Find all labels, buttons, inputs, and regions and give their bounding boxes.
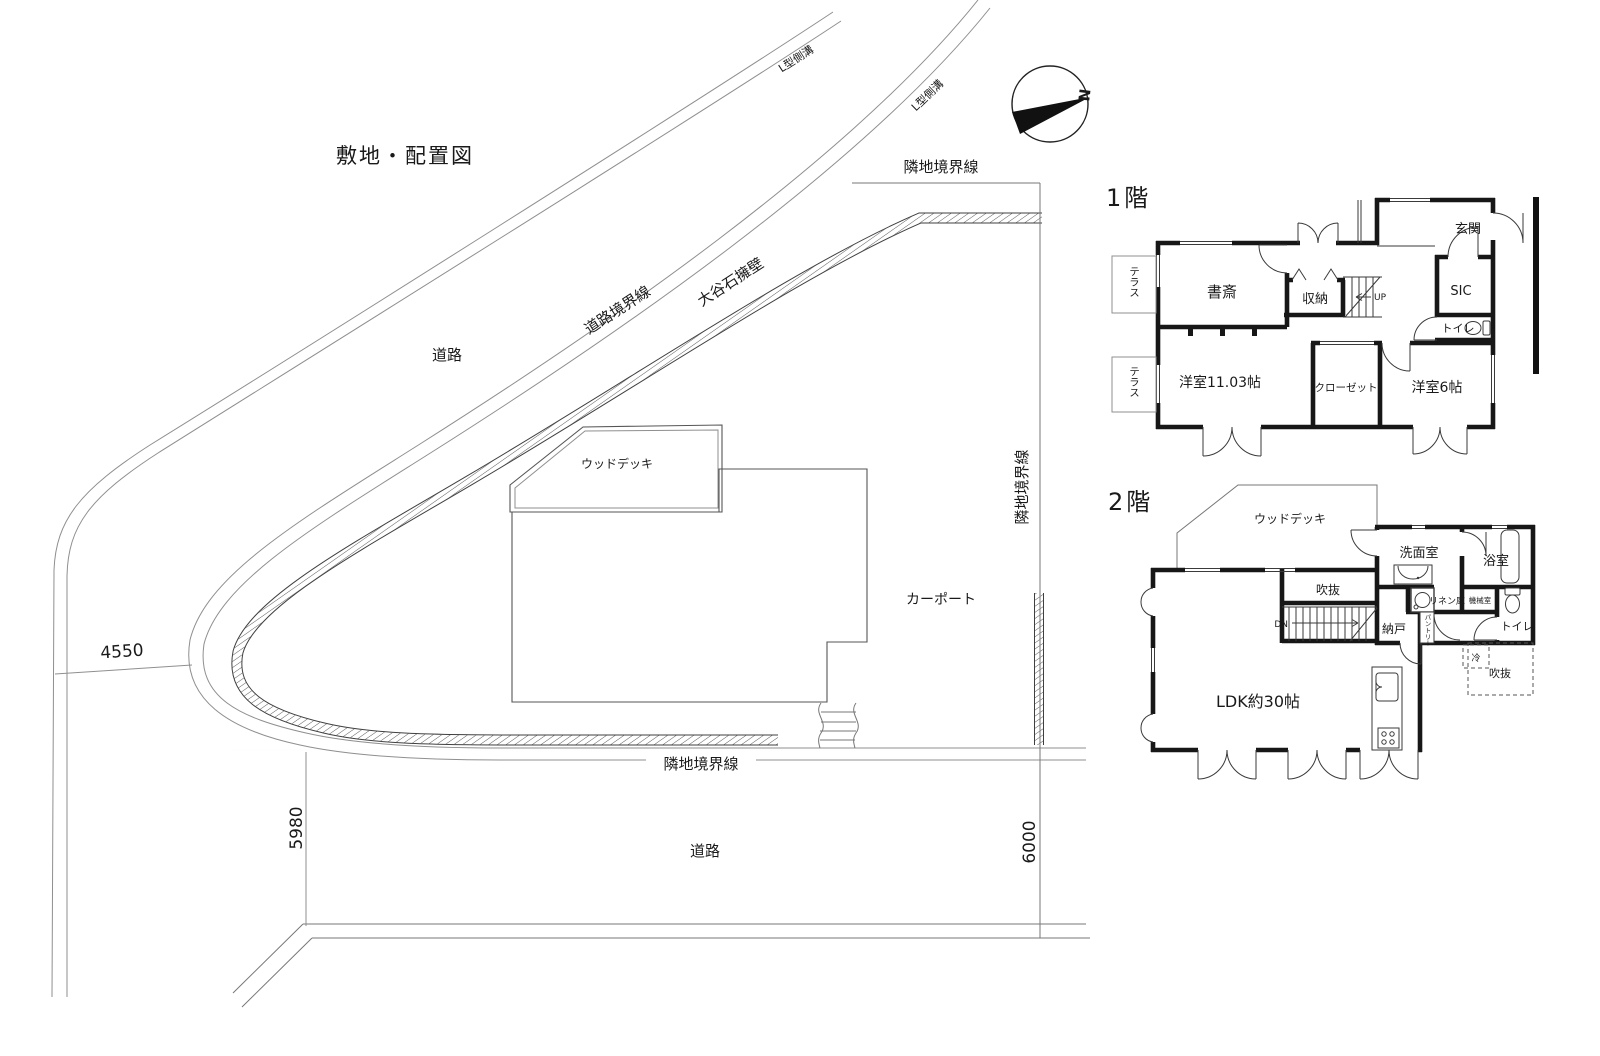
north-label: N [1074,88,1093,103]
storeroom-label: 納戸 [1382,622,1406,636]
western-room-small-label: 洋室6帖 [1412,379,1463,396]
boundary-bar [1533,197,1539,374]
floor1-heading: 1階 [1106,184,1151,212]
wall-stub [1252,327,1257,336]
machine-room-label: 機械室 [1469,595,1492,605]
pantry-label: パントリー [1423,614,1431,647]
road-boundary-label: 道路境界線 [581,282,654,338]
floor2-heading: 2階 [1108,488,1153,516]
wall-stub [1220,327,1225,336]
dim-6000: 6000 [1020,820,1040,863]
dn-label: DN [1274,620,1288,630]
site-wood-deck-label: ウッドデッキ [581,456,653,471]
void-bottom-label: 吹抜 [1489,666,1511,680]
fridge-label: 冷 [1471,652,1480,664]
toilet-label-2f: トイレ [1501,620,1534,633]
dim-4550: 4550 [100,641,145,664]
building-footprint [510,425,867,748]
north-arrow-icon: N [1012,66,1094,142]
wall-stub [1188,327,1193,336]
terrace2-label: テラス [1128,366,1140,398]
floor1-stairs [1343,200,1435,317]
terrace1-label: テラス [1128,266,1140,298]
closet-label: クローゼット [1315,382,1378,394]
boundary-top-label: 隣地境界線 [903,158,978,176]
dim-5980: 5980 [287,806,307,849]
road-upper-label: 道路 [432,346,462,364]
western-room-large-label: 洋室11.03帖 [1179,374,1261,391]
ldk-label: LDK約30帖 [1216,692,1300,711]
gutter-far-label: L型側溝 [776,42,816,75]
floor2-plan: 2階 [1108,485,1535,779]
gutter-near-label: L型側溝 [908,76,946,113]
washbasin-icon [1394,565,1432,584]
up-label: UP [1374,293,1387,303]
kitchen-counter [1372,667,1402,750]
site-plan: N 敷地・配置図 L型側溝 L型側溝 道路 道路境界線 大谷石擁壁 隣地境界線 … [52,0,1094,1007]
toilet-label-1f: トイレ [1442,322,1475,335]
sheet-title: 敷地・配置図 [336,144,474,168]
plan-drawing: N 敷地・配置図 L型側溝 L型側溝 道路 道路境界線 大谷石擁壁 隣地境界線 … [0,0,1600,1056]
boundary-bottom-label: 隣地境界線 [663,755,738,773]
floor1-plan: 1階 書斎 収納 玄関 [1106,184,1539,456]
floor2-wood-deck-outline [1177,485,1377,570]
floor2-wood-deck-label: ウッドデッキ [1254,511,1326,526]
linen-label: リネン庫 [1429,595,1465,607]
study-label: 書斎 [1207,283,1237,301]
floor2-stairs [1282,607,1377,641]
floor2-walls [1151,525,1535,752]
road-lower-label: 道路 [690,842,720,860]
floor2-doors [1198,530,1497,779]
carport-label: カーポート [906,592,976,608]
storage-label: 収納 [1302,292,1328,307]
entrance-label: 玄関 [1455,222,1481,237]
bathroom-label: 浴室 [1483,553,1509,569]
toilet-icon-2f [1505,588,1520,613]
boundary-right-label: 隣地境界線 [1013,449,1031,524]
sic-label: SIC [1450,284,1471,299]
void-top-label: 吹抜 [1316,583,1340,597]
site-and-floor-plan-sheet: N 敷地・配置図 L型側溝 L型側溝 道路 道路境界線 大谷石擁壁 隣地境界線 … [0,0,1600,1056]
exterior-stairs [819,703,859,748]
washroom-label: 洗面室 [1399,545,1438,561]
